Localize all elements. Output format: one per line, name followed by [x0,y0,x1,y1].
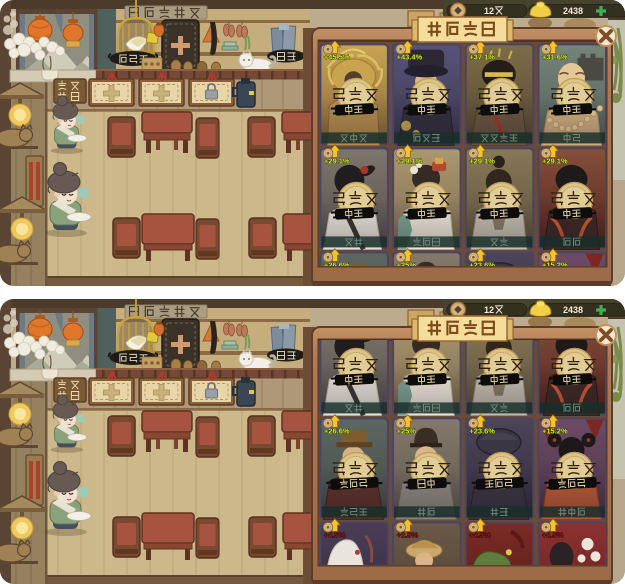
svg-text:+29.1%: +29.1% [397,157,423,166]
svg-text:+29.1%: +29.1% [324,157,350,166]
svg-text:+26.6%: +26.6% [324,427,350,436]
svg-text:+15.2%: +15.2% [542,427,568,436]
svg-text:+2.5%: +2.5% [324,531,346,540]
svg-text:+29.1%: +29.1% [542,157,568,166]
svg-text:+29.1%: +29.1% [469,157,495,166]
svg-text:+37.1%: +37.1% [469,53,495,62]
svg-text:+45.5%: +45.5% [324,53,350,62]
svg-text:+25%: +25% [397,427,417,436]
svg-text:+2.5%: +2.5% [469,531,491,540]
svg-text:2438: 2438 [563,305,583,315]
svg-text:+2.5%: +2.5% [397,531,419,540]
svg-text:+2.5%: +2.5% [542,531,564,540]
svg-text:+43.4%: +43.4% [397,53,423,62]
svg-text:+31.6%: +31.6% [542,53,568,62]
svg-text:12: 12 [484,6,494,16]
svg-text:2438: 2438 [563,6,583,16]
svg-text:12: 12 [484,305,494,315]
svg-text:+23.6%: +23.6% [469,427,495,436]
